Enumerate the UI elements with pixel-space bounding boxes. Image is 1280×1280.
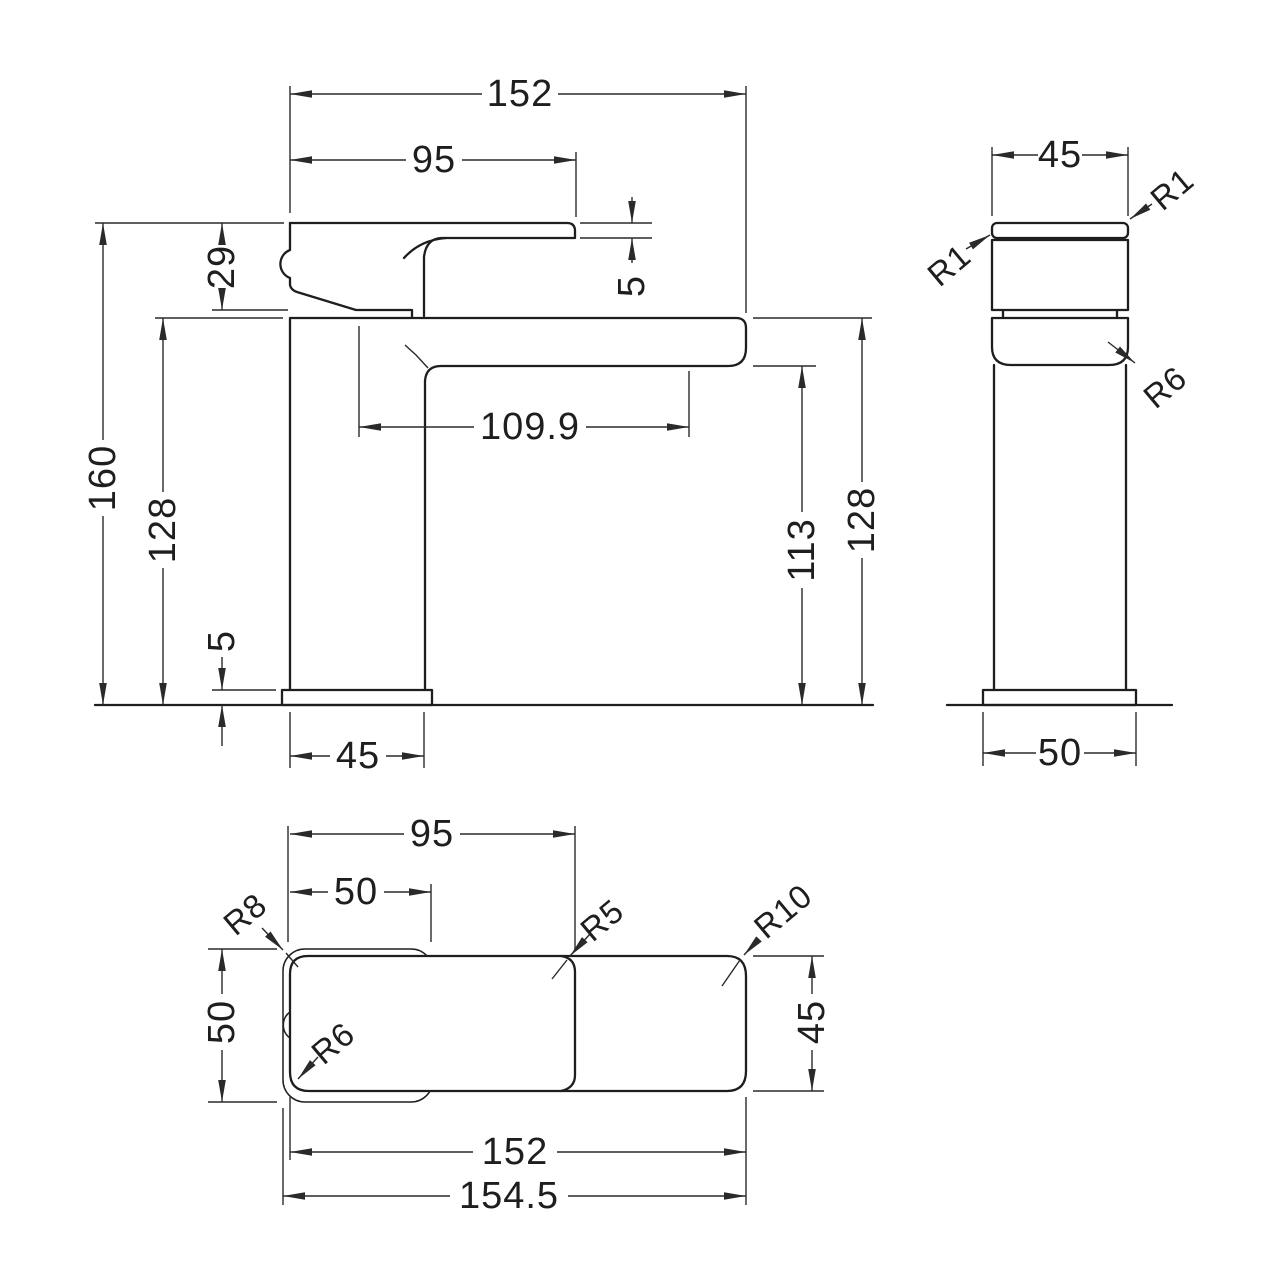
- side-spout-block: [992, 318, 1128, 365]
- front-view: 152 95 29 5 160 128: [82, 73, 883, 777]
- dim-plan-body-length: 95: [290, 813, 575, 855]
- dim-front-lever-thickness: 5: [611, 197, 653, 297]
- dim-label-underside-height: 113: [781, 518, 823, 582]
- dim-label-lever-thickness: 5: [611, 275, 653, 297]
- callout-plan-r8: R8: [216, 886, 298, 967]
- dim-label-plan-body-length: 95: [410, 813, 454, 855]
- dim-label-handle-height: 29: [201, 245, 243, 289]
- dim-plan-base-length: 50: [290, 871, 431, 913]
- dim-front-base-thickness: 5: [201, 630, 243, 746]
- leader-line: [1108, 342, 1135, 363]
- dim-label-plan-base-length: 50: [334, 871, 378, 913]
- dim-label-handle-length: 95: [412, 139, 456, 181]
- plan-view: 95 50 50 45 152 154.5: [201, 813, 833, 1217]
- dim-label-right-height: 128: [841, 487, 883, 553]
- dim-front-underside-height: 113: [781, 366, 823, 705]
- dim-label-plan-tap-length: 152: [482, 1131, 548, 1173]
- dim-plan-spout-width: 45: [791, 956, 833, 1091]
- radius-label-r8: R8: [216, 886, 274, 943]
- dim-label-plan-overall-length: 154.5: [459, 1175, 559, 1217]
- leader-line: [744, 940, 758, 955]
- callout-side-r1-left: R1: [920, 235, 990, 293]
- dim-front-handle-length: 95: [290, 139, 576, 181]
- leader-line: [1130, 204, 1152, 219]
- dim-front-total-height: 160: [82, 223, 124, 705]
- radius-label-r6-side: R6: [1136, 359, 1194, 416]
- technical-drawing-page: 152 95 29 5 160 128: [0, 0, 1280, 1280]
- radius-label-r5: R5: [573, 892, 631, 949]
- side-base-plate: [983, 690, 1136, 705]
- dim-label-body-width: 45: [336, 735, 380, 777]
- dim-front-spout-reach: 109.9: [359, 406, 689, 448]
- leader-line: [966, 235, 990, 249]
- dim-side-width: 45: [992, 134, 1128, 176]
- plan-body-spout-outline: [290, 956, 746, 1091]
- side-view: 45 50 R1 R1 R6: [920, 134, 1201, 774]
- side-handle-block: [992, 240, 1128, 310]
- dim-front-left-height: 128: [142, 318, 184, 705]
- technical-drawing-canvas: 152 95 29 5 160 128: [0, 0, 1280, 1280]
- dim-front-handle-height: 29: [201, 223, 243, 310]
- dim-plan-tap-length: 152: [290, 1131, 746, 1173]
- dim-plan-base-width: 50: [201, 949, 243, 1102]
- dim-front-right-height: 128: [841, 318, 883, 705]
- callout-side-r1-right: R1: [1130, 161, 1201, 219]
- dim-label-spout-reach: 109.9: [480, 406, 580, 448]
- dim-label-total-width: 152: [487, 73, 553, 115]
- leader-line: [262, 928, 283, 950]
- side-lever-cap: [992, 223, 1128, 238]
- dim-label-side-width: 45: [1038, 134, 1082, 176]
- radius-label-r1-left: R1: [920, 237, 978, 294]
- dim-label-plan-spout-width: 45: [791, 1000, 833, 1044]
- dim-front-total-width: 152: [290, 73, 746, 115]
- callout-side-r6: R6: [1108, 342, 1194, 415]
- dim-label-total-height: 160: [82, 445, 124, 511]
- dim-side-base-width: 50: [983, 732, 1136, 774]
- front-base-plate: [282, 690, 432, 705]
- dim-label-plan-base-width: 50: [201, 1000, 243, 1044]
- front-handle-base-outline: [280, 223, 412, 317]
- dim-front-body-width: 45: [290, 735, 424, 777]
- front-fillet-leader: [405, 345, 428, 368]
- dim-label-left-height: 128: [142, 497, 184, 563]
- radius-label-r10: R10: [747, 876, 819, 945]
- dim-plan-overall-length: 154.5: [283, 1175, 746, 1217]
- dim-label-base-thickness: 5: [201, 630, 243, 652]
- dim-label-side-base-width: 50: [1038, 732, 1082, 774]
- radius-label-r1-right: R1: [1143, 161, 1201, 218]
